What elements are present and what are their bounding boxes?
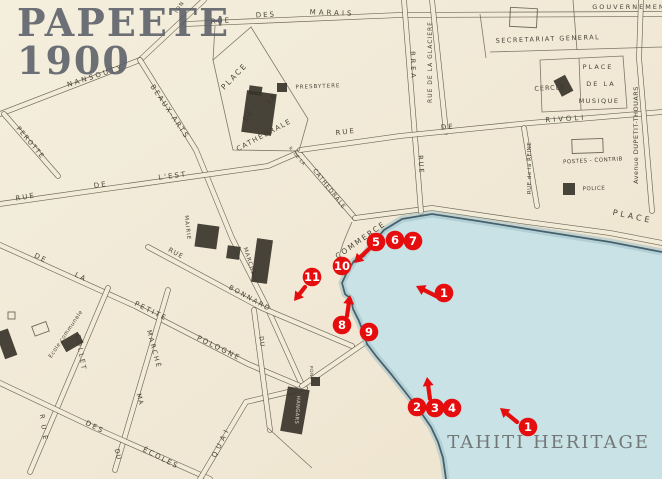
papeete-map: RUEDESMARAISIONGOUVERNEMENTSECRETARIAT G… (0, 0, 662, 479)
map-label-des: DES (256, 10, 277, 19)
map-label-place: PLACE (583, 63, 614, 71)
svg-text:11: 11 (304, 270, 320, 284)
cathedral-building (248, 85, 262, 96)
map-label-avenue-dupetit-thouars: Avenue DUPETIT-THOUARS (632, 86, 640, 184)
svg-text:1: 1 (524, 420, 532, 434)
map-label-rue-de-la-reine: RUE de la REINE (527, 142, 533, 194)
svg-text:1: 1 (440, 286, 448, 300)
map-label-musique: MUSIQUE (579, 97, 620, 105)
marker-7: 7 (404, 232, 423, 251)
map-label-cercle: CERCLE (534, 83, 565, 93)
map-label-police: POLICE (583, 186, 606, 193)
presbytere-building (277, 83, 287, 92)
mairie-building (194, 224, 219, 250)
map-label-de-la: DE LA (586, 80, 615, 88)
marker-3: 3 (426, 399, 445, 418)
marker-2: 2 (408, 398, 427, 417)
map-label-de: DE (441, 122, 455, 131)
marker-8: 8 (333, 316, 352, 335)
svg-text:2: 2 (413, 400, 421, 414)
marker-4: 4 (443, 399, 462, 418)
svg-text:3: 3 (431, 401, 439, 415)
marker-5: 5 (367, 233, 386, 252)
map-label-rue: RUE (210, 16, 231, 25)
marker-11: 11 (303, 268, 322, 287)
map-canvas: RUEDESMARAISIONGOUVERNEMENTSECRETARIAT G… (0, 0, 662, 479)
map-label-rue: RUE (416, 155, 425, 175)
market-annex-building (226, 245, 241, 260)
marker-1: 1 (519, 418, 538, 437)
map-label-rue-de-la-glaciere: RUE DE LA GLACIERE (427, 21, 434, 103)
marker-10: 10 (333, 257, 352, 276)
marker-9: 9 (360, 323, 379, 342)
map-label-marais: MARAIS (310, 8, 355, 18)
police-building (563, 183, 575, 195)
marker-1: 1 (435, 284, 454, 303)
map-label-brea: BREA (408, 51, 417, 81)
svg-text:5: 5 (372, 235, 380, 249)
svg-text:6: 6 (391, 233, 399, 247)
svg-text:7: 7 (409, 234, 417, 248)
map-label-gouvernement: GOUVERNEMENT (592, 3, 662, 11)
svg-text:4: 4 (448, 401, 456, 415)
svg-text:10: 10 (334, 259, 350, 273)
marker-6: 6 (386, 231, 405, 250)
map-label-pont: PONT (308, 366, 314, 381)
svg-text:8: 8 (338, 318, 346, 332)
svg-text:9: 9 (365, 325, 373, 339)
